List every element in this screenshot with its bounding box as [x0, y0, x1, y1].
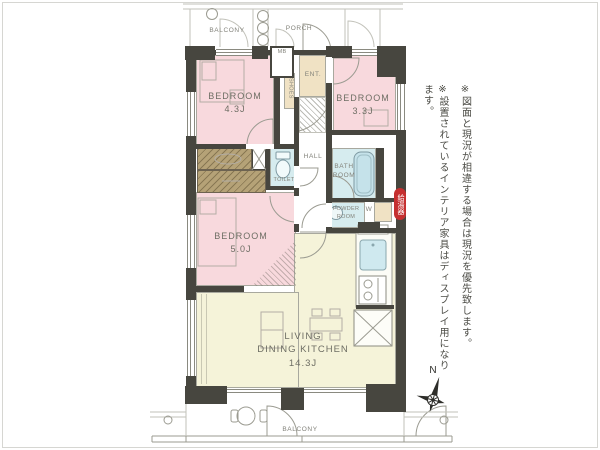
wall-segment	[358, 222, 380, 229]
entrance-label: ENT.	[305, 70, 322, 79]
window	[187, 300, 195, 376]
sink-icon	[360, 240, 386, 270]
window	[352, 49, 377, 56]
window	[187, 215, 195, 268]
bathroom-label: BATH ROOM	[333, 162, 356, 180]
plan-linework	[0, 0, 600, 450]
bedroom-43-name: BEDROOM	[208, 91, 262, 101]
wall-segment	[281, 388, 304, 410]
compass-rose	[413, 372, 450, 414]
bedroom-50-size: 5.0J	[230, 244, 251, 254]
toilet-label: TOILET	[274, 177, 295, 185]
door-gap	[246, 144, 274, 149]
window	[216, 49, 252, 56]
wall-segment	[396, 130, 406, 392]
ldk-name: LIVING DINING KITCHEN	[257, 331, 349, 355]
bathtub-icon	[354, 152, 374, 196]
porch-label: PORCH	[286, 24, 312, 33]
balcony-table-icon	[231, 407, 267, 425]
ldk-size: 14.3J	[289, 358, 317, 369]
toilet-icon	[276, 152, 290, 178]
stove-icon	[359, 276, 386, 304]
door-gap	[294, 196, 299, 224]
door-gap	[294, 166, 299, 188]
ldk-label: LIVING DINING KITCHEN14.3J	[257, 330, 349, 370]
bedroom-33-label: BEDROOM3.3J	[336, 92, 390, 117]
wall-segment	[332, 130, 404, 135]
door-gap	[326, 57, 332, 83]
wall-segment	[376, 148, 384, 200]
wall-segment	[186, 268, 196, 300]
balcony-bottom-label: BALCONY	[282, 425, 317, 434]
window	[187, 92, 195, 136]
wall-segment	[396, 46, 406, 84]
powder-room-label: POWDER ROOM	[333, 206, 360, 221]
washer-label: W	[366, 205, 373, 214]
water-heater-badge: 給湯器	[394, 188, 406, 220]
pipe-shaft-x	[252, 148, 266, 170]
closet-detail	[215, 154, 241, 181]
wall-segment	[186, 136, 196, 215]
hall-label: HALL	[304, 152, 323, 161]
wall-segment	[186, 46, 196, 92]
wall-segment	[332, 198, 396, 202]
bedroom-43-size: 4.3J	[224, 104, 245, 114]
disclaimer-note-2: ※設置されているインテリア家具はディスプレイ用になります。	[419, 84, 450, 376]
disclaimer-note-1: ※図面と現況が相違する場合は現況を優先致します。	[457, 84, 473, 376]
wall-segment	[266, 146, 270, 190]
wall-segment	[186, 286, 244, 292]
wall-segment	[356, 305, 394, 309]
bedroom-50-name: BEDROOM	[214, 231, 268, 241]
window	[397, 84, 405, 130]
disclaimer-notes: ※図面と現況が相違する場合は現況を優先致します。 ※設置されているインテリア家具…	[412, 84, 473, 376]
door-gap	[326, 203, 332, 227]
bedroom-43-label: BEDROOM4.3J	[208, 90, 262, 115]
wall-segment	[274, 78, 280, 146]
wall-segment	[185, 386, 227, 404]
bedroom-50-label: BEDROOM5.0J	[214, 230, 268, 255]
bedroom-33-name: BEDROOM	[336, 93, 390, 103]
refrigerator-icon	[354, 310, 392, 346]
entrance-step-line	[299, 110, 326, 131]
floorplan-canvas: BALCONY PORCH MB ENT. SHOES BEDROOM4.3J …	[0, 0, 600, 450]
window	[227, 389, 281, 395]
meter-box-label: MB	[278, 49, 287, 57]
wall-segment	[252, 46, 268, 59]
window	[304, 389, 366, 395]
shoes-label: SHOES	[286, 78, 294, 99]
wall-segment	[366, 384, 406, 412]
bedroom-33-size: 3.3J	[352, 106, 373, 116]
balcony-top-label: BALCONY	[209, 26, 244, 35]
